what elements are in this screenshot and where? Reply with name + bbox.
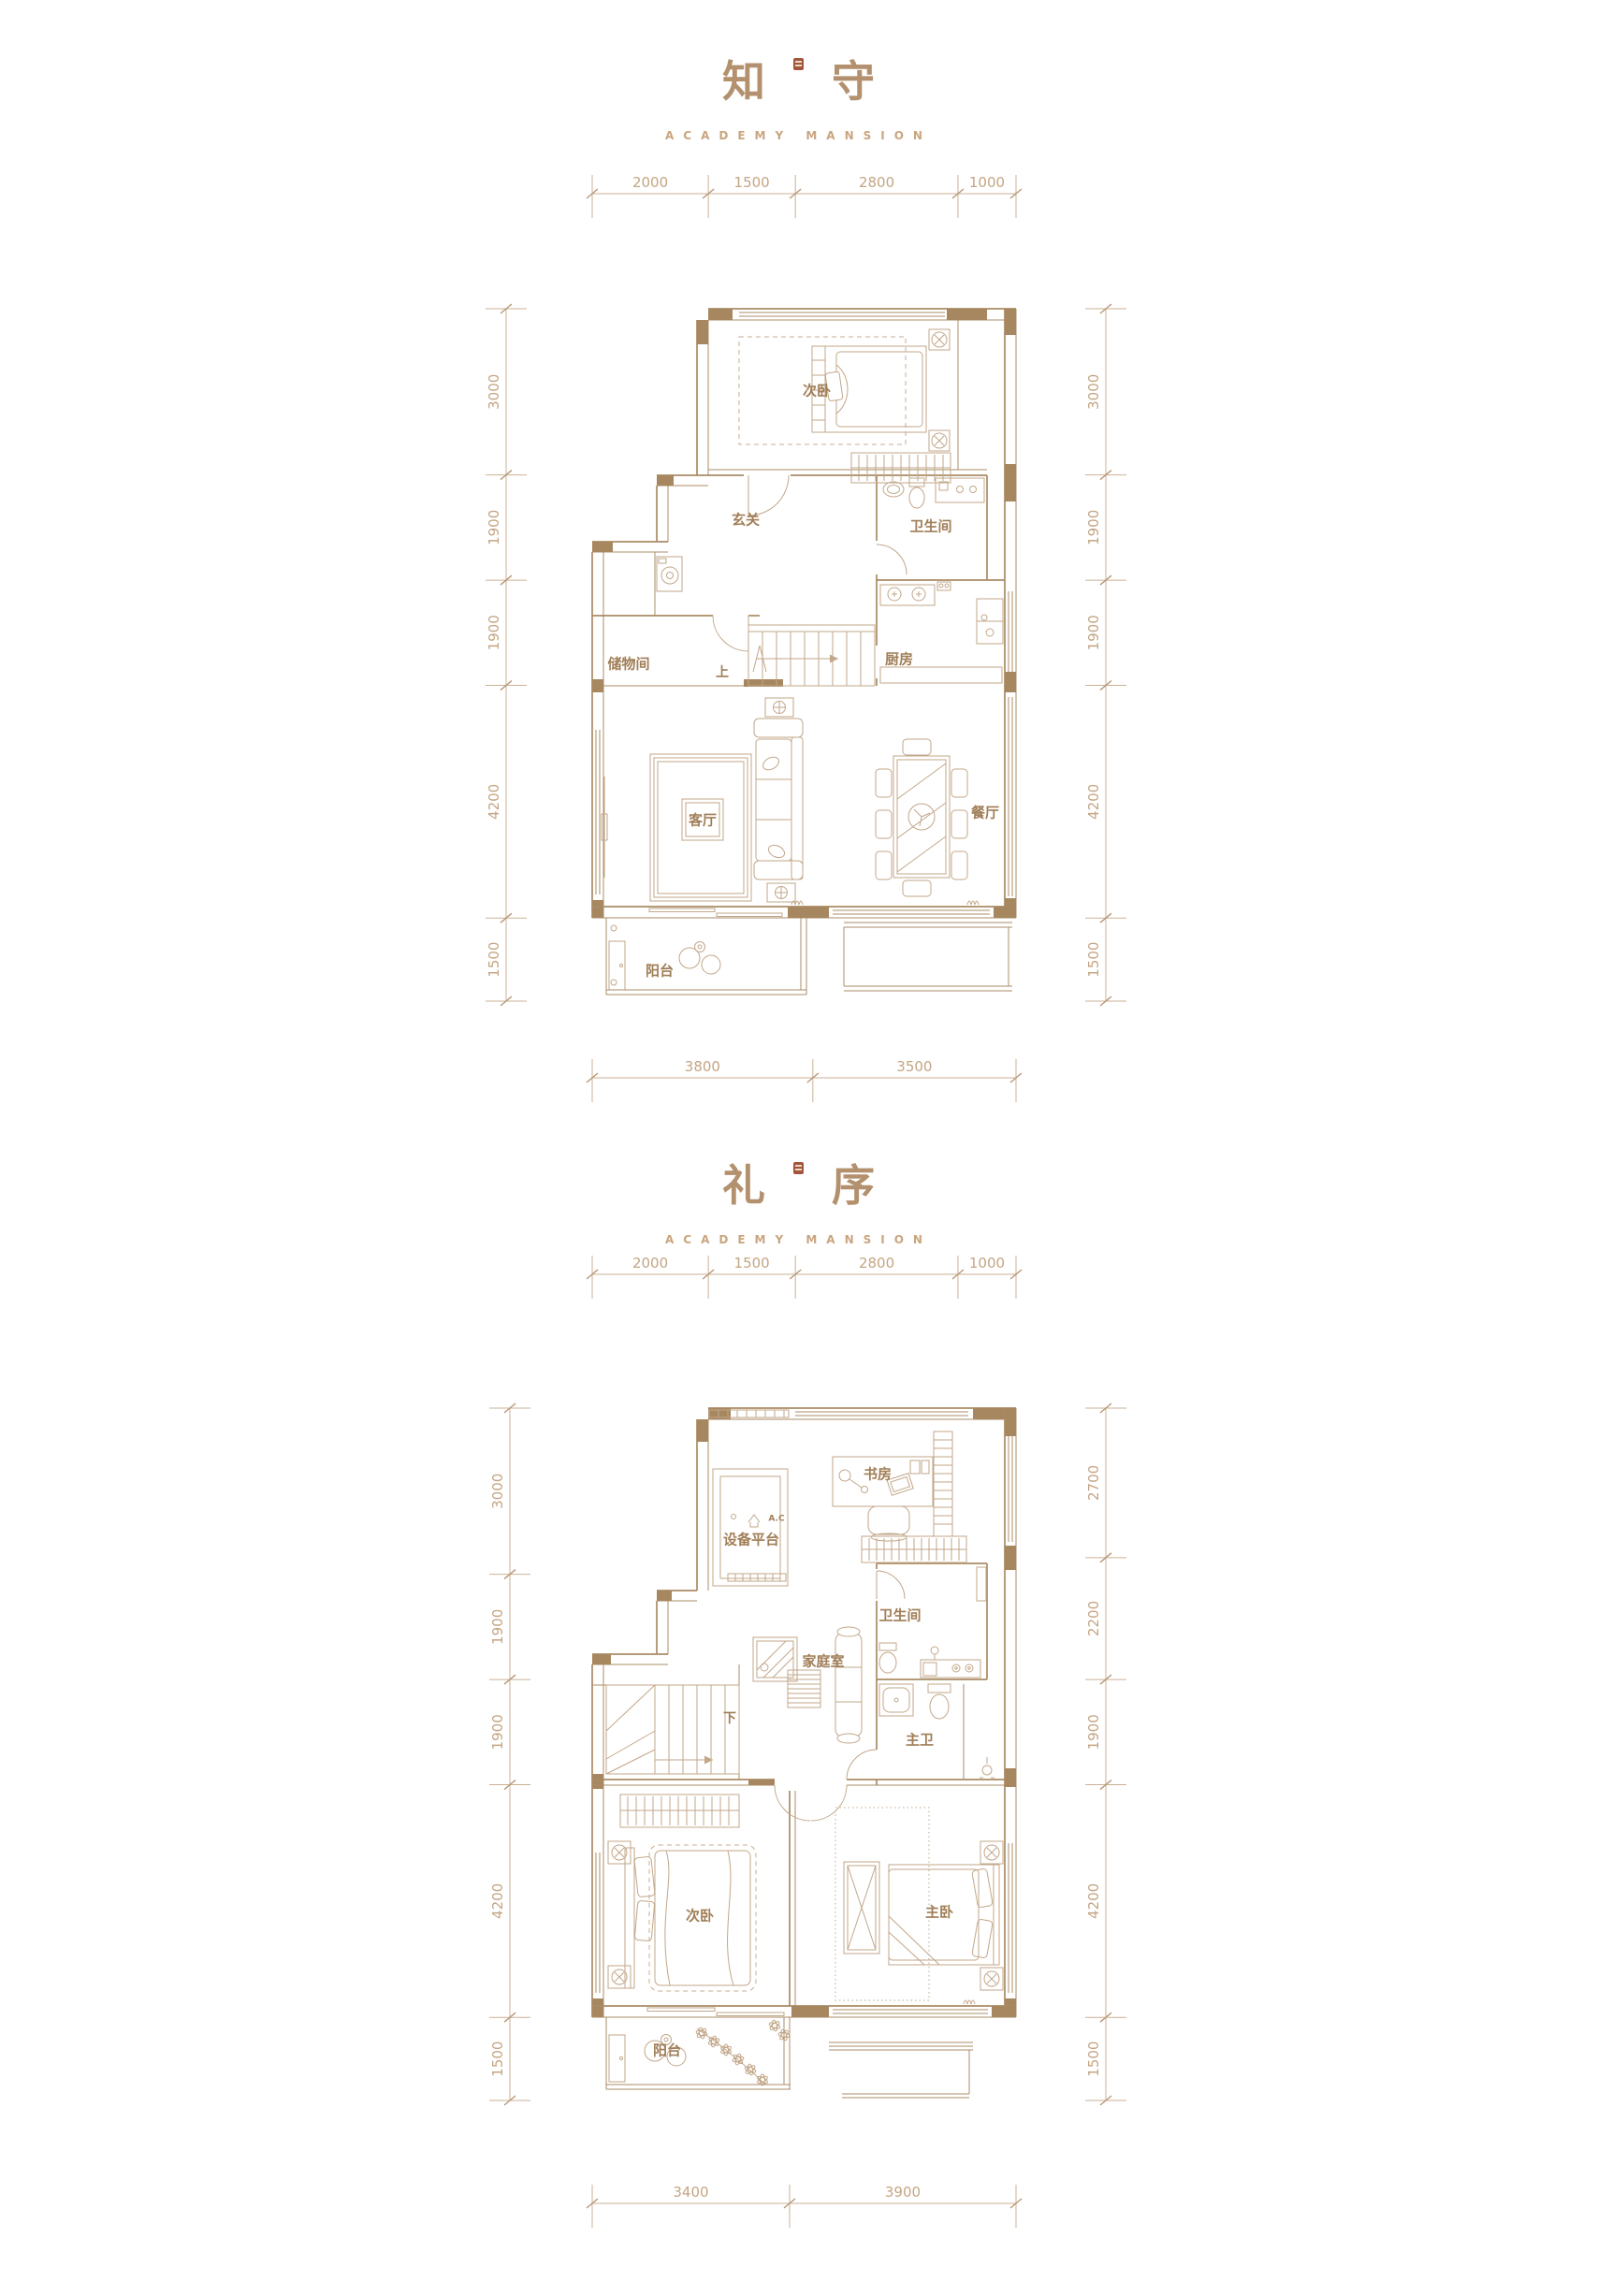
dim-label: 3800 (685, 1058, 720, 1075)
bedroom2-furniture (608, 1795, 756, 1991)
dim-label: 2000 (632, 174, 668, 191)
room-label-bathroom: 卫生间 (878, 1607, 921, 1624)
dim-label: 2800 (859, 1255, 894, 1272)
dim-label: 1900 (1085, 1714, 1102, 1750)
room-label-study: 书房 (864, 1466, 892, 1483)
room-label-master-bedroom: 主卧 (925, 1904, 953, 1921)
dim-label: 1500 (489, 2042, 506, 2077)
fan-coil-icon (608, 1966, 631, 1988)
room-label-secondary-bedroom: 次卧 (686, 1908, 714, 1925)
dim-label: 1000 (969, 174, 1005, 191)
fan-coil-icon (929, 329, 950, 350)
dim-label: 4200 (489, 1883, 506, 1919)
room-label-secondary-bedroom: 次卧 (803, 383, 831, 400)
dim-label: 1900 (489, 1714, 506, 1750)
faucet-icon (928, 1647, 941, 1660)
dim-label: 1500 (734, 1255, 770, 1272)
chair (702, 955, 720, 974)
stove-icon (880, 585, 935, 605)
stairs-up-note: 上 (716, 665, 729, 680)
ac-note: A.C (768, 1515, 785, 1524)
room-label-entry-hall: 玄关 (732, 512, 760, 529)
room-label-dining-room: 餐厅 (971, 805, 999, 821)
sofa (754, 719, 803, 879)
fan-coil-icon (980, 1841, 1003, 1864)
dim-label: 2800 (859, 174, 894, 191)
family-sofa (835, 1627, 862, 1743)
dim-label: 1900 (489, 1609, 506, 1645)
dim-label: 2200 (1085, 1601, 1102, 1636)
dining-room-furniture (791, 739, 979, 905)
dim-label: 1500 (486, 942, 502, 978)
dim-label: 3900 (885, 2184, 921, 2201)
dim-label: 1900 (1085, 615, 1102, 650)
shower-icon (980, 1757, 994, 1778)
utility-and-stairs (657, 557, 875, 686)
curtain-icon (964, 2000, 975, 2004)
dining-table (893, 756, 950, 878)
sink-icon (883, 482, 904, 497)
dim-label: 3000 (1085, 374, 1102, 410)
rug (835, 1808, 929, 2000)
study-furniture (833, 1431, 966, 1562)
equipment-platform-unit (713, 1469, 788, 1586)
dim-label: 3500 (896, 1058, 932, 1075)
bedroom1-furniture (739, 329, 951, 483)
plan2-title-char2: 序 (832, 1158, 875, 1213)
dimension-layer: 2000150028001000340039003000190019004200… (489, 1255, 1126, 2228)
vent-icon (748, 1515, 760, 1527)
dim-label: 4200 (1085, 1883, 1102, 1919)
balcony1-furniture (606, 908, 1012, 995)
dim-label: 1900 (486, 510, 502, 545)
room-label-storage: 储物间 (607, 656, 649, 673)
lamp-table (765, 698, 793, 717)
dim-label: 2000 (632, 1255, 668, 1272)
plan1-title-char2: 守 (832, 54, 875, 109)
curtain-icon (967, 901, 979, 905)
stairs-down-note: 下 (723, 1711, 736, 1726)
dim-label: 4200 (1085, 784, 1102, 820)
dim-label: 4200 (486, 784, 502, 820)
seal-icon (793, 1162, 804, 1174)
room-label-equipment-platform: 设备平台 (723, 1532, 779, 1548)
cabinet-louvre (788, 1670, 820, 1707)
staircase-down (606, 1685, 739, 1774)
fan-coil-icon (929, 430, 950, 451)
dim-label: 2700 (1085, 1465, 1102, 1501)
plan2-title-char1: 礼 (722, 1158, 765, 1213)
vanity (936, 478, 984, 502)
kitchen-fixtures (880, 582, 1003, 683)
plan2-room-labels: 书房 设备平台 卫生间 家庭室 主卫 次卧 主卧 阳台 下 A.C (653, 1466, 953, 2059)
laundry-counter (921, 1660, 980, 1678)
plan2-drawing: 书房 设备平台 卫生间 家庭室 主卫 次卧 主卧 阳台 下 A.C 200015… (0, 1244, 1597, 2296)
lamp-table (767, 883, 795, 902)
master-bathroom-fixtures (879, 1684, 994, 1778)
toilet-icon (879, 1643, 896, 1673)
dim-label: 3000 (486, 374, 502, 410)
room-label-living-room: 客厅 (688, 812, 717, 829)
room-label-master-bathroom: 主卫 (906, 1732, 934, 1749)
dim-label: 1500 (1085, 2042, 1102, 2077)
plan1-title: 知 守 (0, 54, 1597, 109)
sink-icon (879, 1684, 913, 1716)
toilet-icon (928, 1684, 951, 1719)
tv-unit (602, 777, 607, 878)
dim-label: 1000 (969, 1255, 1005, 1272)
bookshelf (934, 1431, 952, 1536)
master-bedroom-furniture (835, 1808, 1003, 2004)
small-table (695, 942, 705, 952)
plan1-room-labels: 次卧 玄关 卫生间 厨房 储物间 客厅 餐厅 阳台 上 (607, 383, 999, 980)
room-label-balcony: 阳台 (646, 963, 674, 980)
room-label-balcony: 阳台 (653, 2042, 681, 2059)
fan-coil-icon (980, 1968, 1003, 1990)
desk-chair (868, 1506, 909, 1541)
plan1-subtitle: ACADEMY MANSION (0, 129, 1597, 142)
plan2-title: 礼 序 (0, 1158, 1597, 1213)
living-room-furniture (602, 698, 803, 902)
dim-label: 3400 (673, 2184, 708, 2201)
plants-icon (695, 2017, 791, 2087)
mirror (977, 1567, 986, 1601)
dim-label: 1900 (1085, 510, 1102, 545)
dim-label: 3000 (489, 1474, 506, 1509)
room-label-family-room: 家庭室 (802, 1653, 844, 1670)
dim-label: 1500 (734, 174, 770, 191)
family-room-furniture (753, 1627, 862, 1743)
washing-machine-icon (657, 557, 682, 591)
closet-strip (620, 1795, 739, 1827)
dim-label: 1900 (486, 615, 502, 650)
staircase-up (748, 625, 875, 686)
room-label-kitchen: 厨房 (885, 651, 913, 668)
dim-label: 1500 (1085, 942, 1102, 978)
seal-icon (793, 58, 804, 70)
plan1-title-char1: 知 (722, 54, 765, 109)
room-label-bathroom: 卫生间 (909, 518, 951, 535)
wardrobe-mirror (844, 1862, 879, 1954)
kitchen-sink-icon (977, 599, 1003, 644)
floor-plan-sheet: 知 守 ACADEMY MANSION (0, 0, 1597, 2296)
plan1-drawing: 次卧 玄关 卫生间 厨房 储物间 客厅 餐厅 阳台 上 200015002800… (0, 159, 1597, 1123)
fan-coil-icon (608, 1841, 631, 1864)
